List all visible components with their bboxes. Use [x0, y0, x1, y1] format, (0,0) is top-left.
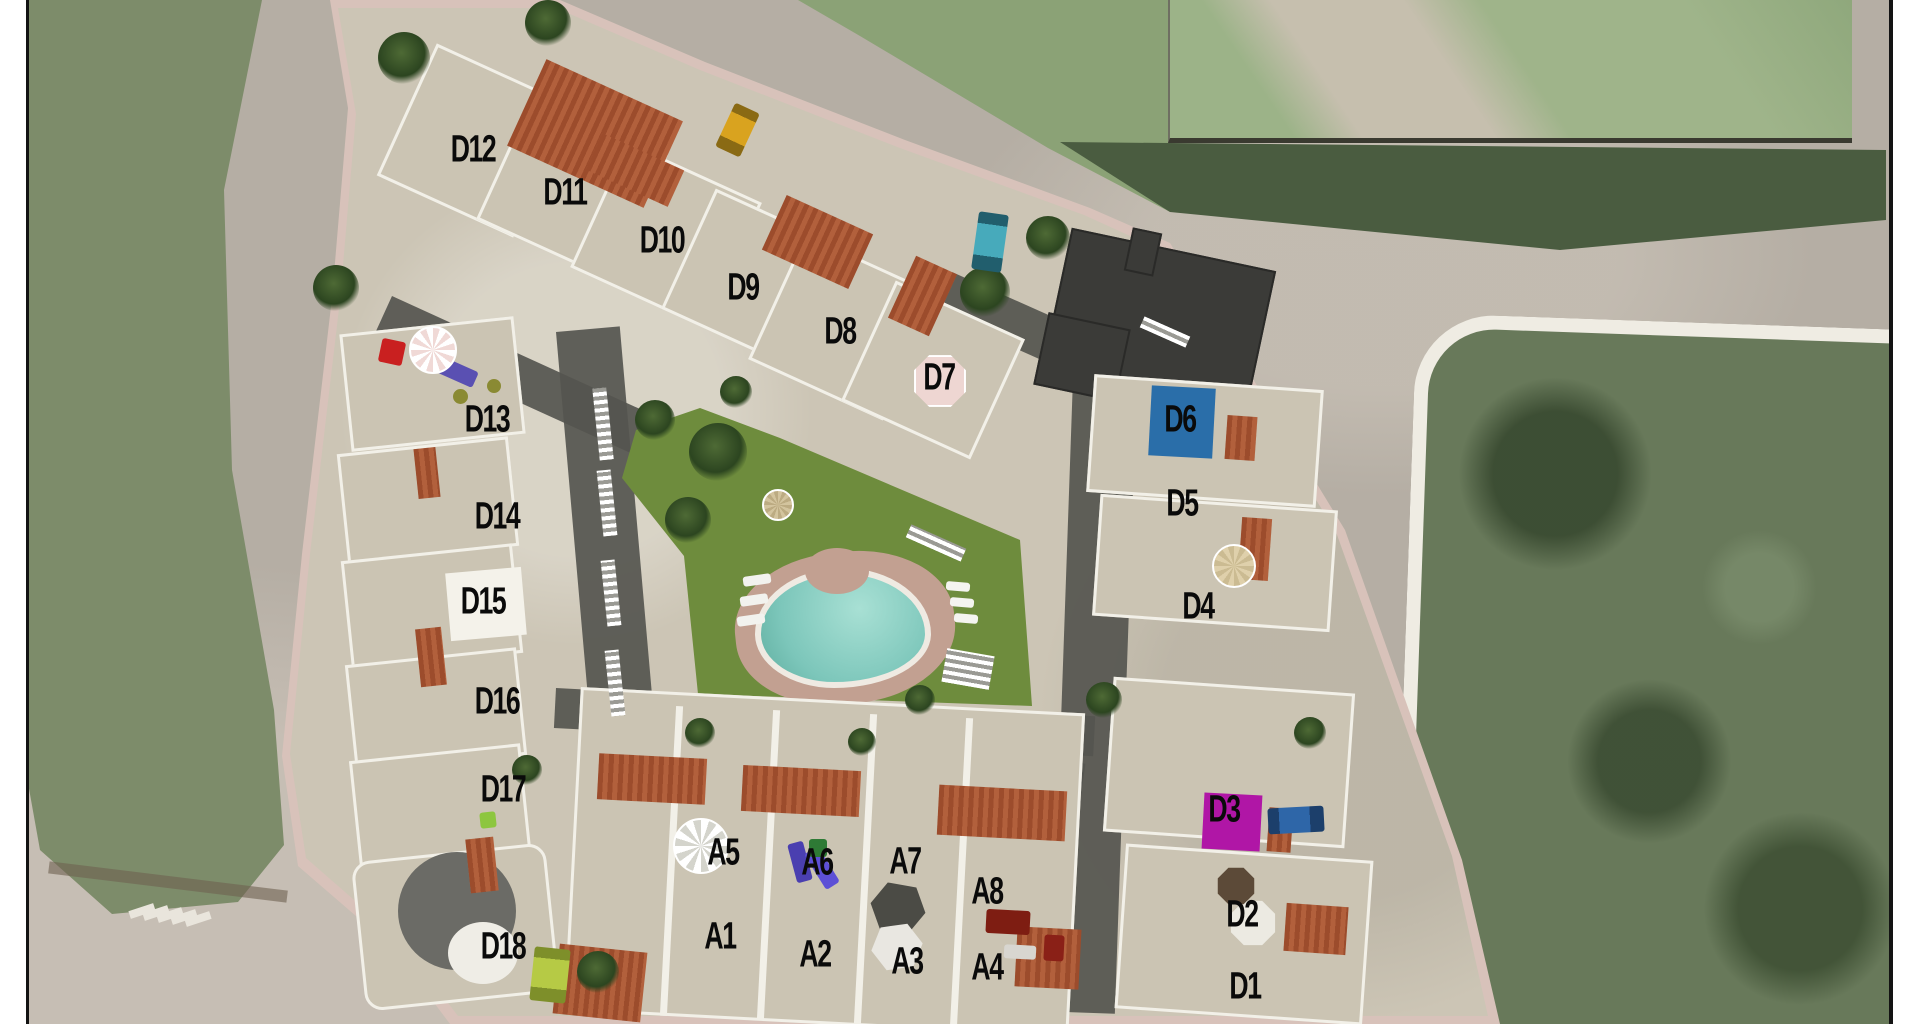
- page-margin-right: [1889, 0, 1920, 1024]
- red-chair: [1043, 934, 1064, 961]
- blue-car: [1267, 806, 1324, 835]
- unit-label-A7: A7: [889, 841, 920, 884]
- beige-umbrella: [1212, 544, 1256, 588]
- unit-label-D2: D2: [1226, 894, 1257, 937]
- sun-mat: [946, 580, 971, 591]
- white-mat: [1004, 944, 1037, 960]
- unit-label-A4: A4: [971, 947, 1002, 990]
- unit-label-A6: A6: [801, 842, 832, 885]
- unit-label-A5: A5: [707, 832, 738, 875]
- olive-pot: [487, 379, 501, 393]
- unit-label-D5: D5: [1166, 483, 1197, 526]
- lime-car: [529, 946, 570, 1003]
- unit-label-D9: D9: [727, 267, 758, 310]
- unit-label-D8: D8: [824, 311, 855, 354]
- unit-label-D6: D6: [1164, 399, 1195, 442]
- unit-label-D3: D3: [1208, 789, 1239, 832]
- unit-label-A8: A8: [971, 871, 1002, 914]
- pink-umbrella: [409, 326, 457, 374]
- unit-label-D12: D12: [451, 129, 496, 172]
- unit-label-D15: D15: [461, 581, 506, 624]
- unit-label-D18: D18: [481, 926, 526, 969]
- unit-label-A2: A2: [799, 934, 830, 977]
- unit-label-D1: D1: [1229, 966, 1260, 1009]
- unit-label-layer: D12D11D10D9D8D7D6D5D4D13D14D15D16D17D18A…: [0, 0, 1920, 1024]
- unit-label-A1: A1: [704, 916, 735, 959]
- unit-label-D17: D17: [481, 769, 526, 812]
- sun-mat: [954, 612, 979, 623]
- unit-label-A3: A3: [891, 941, 922, 984]
- site-plan-map: D12D11D10D9D8D7D6D5D4D13D14D15D16D17D18A…: [0, 0, 1920, 1024]
- unit-label-D13: D13: [465, 399, 510, 442]
- unit-label-D10: D10: [640, 220, 685, 263]
- lawn-parasol: [762, 489, 794, 521]
- unit-label-D4: D4: [1182, 586, 1213, 629]
- red-chair: [378, 338, 406, 366]
- page-margin-left: [0, 0, 29, 1024]
- unit-label-D16: D16: [475, 681, 520, 724]
- unit-label-D11: D11: [543, 172, 586, 215]
- green-box: [479, 811, 497, 829]
- unit-label-D7: D7: [923, 357, 954, 400]
- sun-mat: [950, 596, 975, 607]
- unit-label-D14: D14: [475, 496, 520, 539]
